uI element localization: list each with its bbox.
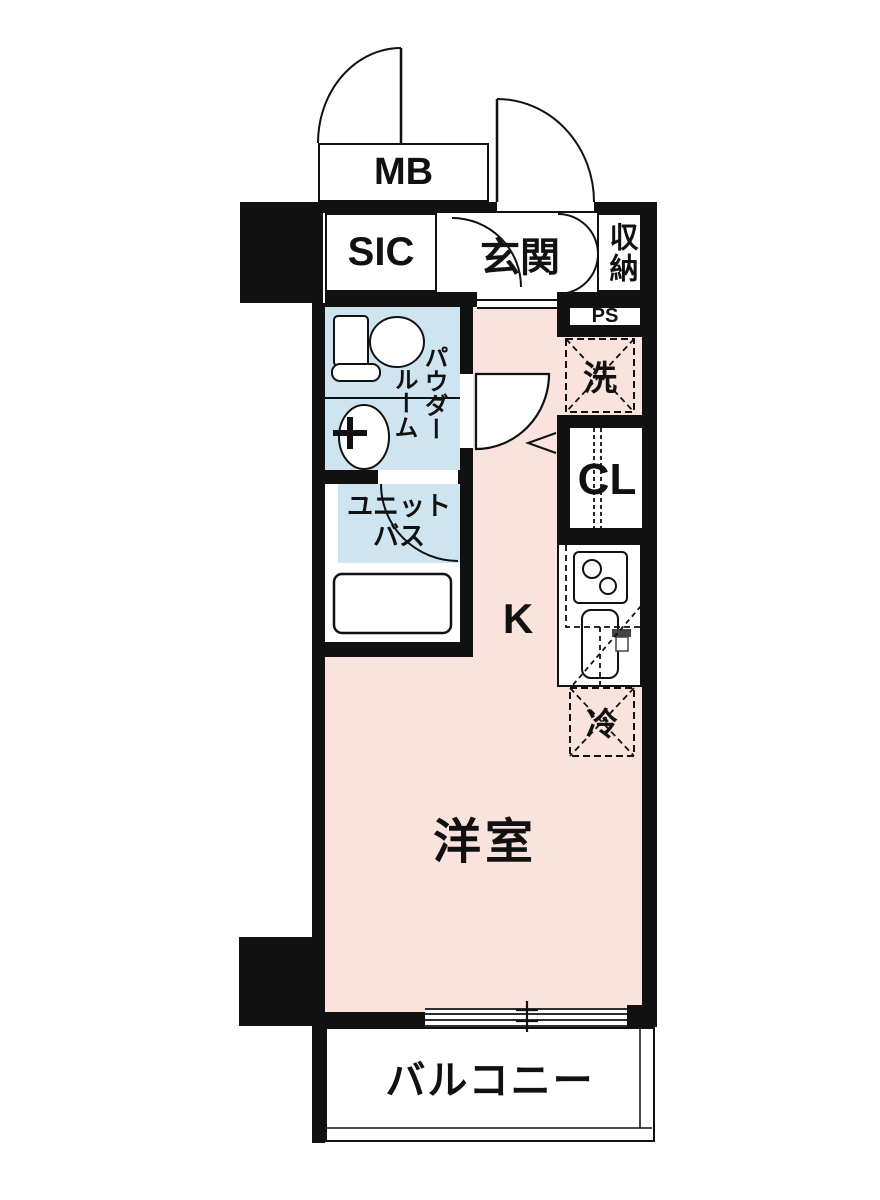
step-lower — [477, 301, 557, 309]
kitchen-counter — [557, 543, 642, 687]
label-refrigerator: 冷 — [570, 688, 634, 756]
entry-door-arc — [497, 99, 594, 202]
pillar-bottom-right — [627, 1005, 657, 1027]
label-powder-room-line1: パウダー — [418, 345, 448, 463]
wall-balcony-left — [312, 1026, 325, 1143]
pillar-top-left — [240, 202, 323, 303]
wall-closet-top — [557, 415, 657, 428]
label-kitchen: K — [488, 596, 548, 642]
entry-door-opening — [497, 202, 594, 213]
label-washer: 洗 — [566, 339, 634, 412]
bath-door-opening — [378, 470, 458, 484]
powder-door-opening — [460, 374, 473, 448]
label-powder-room-line2: ルーム — [388, 345, 418, 463]
label-unit-bath: ユニット バス — [338, 492, 460, 552]
wall-room-bottom — [312, 1012, 425, 1027]
label-entrance: 玄関 — [455, 230, 585, 278]
mb-door-arc — [318, 48, 401, 143]
wall-bath-right — [460, 484, 473, 657]
label-pipe-space: PS — [568, 305, 642, 327]
wall-bath-bottom — [312, 642, 473, 657]
wall-closet-bottom — [557, 528, 657, 543]
label-unit-bath-line2: バス — [338, 522, 460, 552]
label-storage: 収納 — [602, 214, 640, 292]
shoe-closet-door-gap — [437, 213, 449, 292]
label-balcony: バルコニー — [325, 1027, 655, 1127]
wall-left — [312, 303, 325, 1026]
wall-below-sic — [325, 292, 477, 307]
label-western-room: 洋室 — [390, 808, 580, 866]
floor-plan-canvas: MB SIC 玄関 収納 PS 洗 CL パウダー ルーム ユニット バス K … — [0, 0, 880, 1200]
label-closet: CL — [568, 452, 646, 508]
label-meter-box: MB — [318, 143, 489, 202]
step-upper — [477, 292, 557, 301]
label-powder-room: パウダー ルーム — [388, 345, 448, 463]
label-unit-bath-line1: ユニット — [338, 492, 460, 522]
label-shoe-closet: SIC — [325, 213, 437, 292]
window-strip — [425, 1008, 627, 1027]
